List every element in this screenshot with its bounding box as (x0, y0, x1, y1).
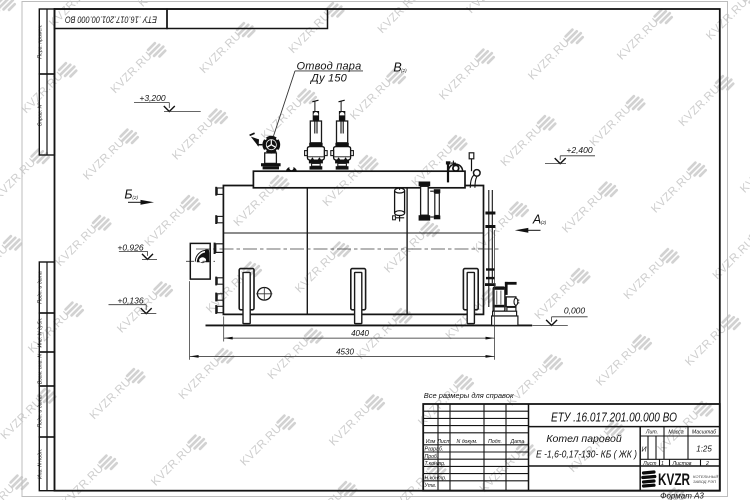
svg-text:KVZR.RU: KVZR.RU (649, 169, 695, 215)
svg-text:Котел паровой: Котел паровой (546, 433, 621, 445)
svg-text:KVZR.RU: KVZR.RU (149, 442, 195, 488)
svg-text:1:25: 1:25 (696, 445, 712, 454)
svg-text:Дата: Дата (509, 439, 524, 445)
svg-text:KVZR.RU: KVZR.RU (499, 123, 545, 169)
svg-text:Лист: Лист (642, 461, 657, 467)
svg-text:KVZR.RU: KVZR.RU (259, 96, 305, 142)
svg-text:Масса: Масса (668, 430, 683, 436)
svg-text:И: И (641, 447, 647, 454)
svg-text:KVZR.RU: KVZR.RU (293, 249, 339, 295)
svg-text:1: 1 (661, 461, 664, 467)
svg-text:KVZR.RU: KVZR.RU (26, 309, 72, 355)
svg-text:Подп. и дата: Подп. и дата (38, 271, 44, 304)
svg-text:KVZR.RU: KVZR.RU (177, 356, 223, 402)
svg-text:(2): (2) (401, 68, 407, 73)
svg-text:Лит.: Лит. (645, 430, 658, 436)
svg-text:KVZR.RU: KVZR.RU (287, 10, 333, 56)
svg-text:KVZR.RU: KVZR.RU (526, 36, 572, 82)
svg-text:KVZR.RU: KVZR.RU (54, 223, 100, 269)
svg-text:+0,136: +0,136 (117, 296, 144, 306)
svg-text:Инв. N подл.: Инв. N подл. (38, 449, 44, 479)
svg-text:KVZR.RU: KVZR.RU (170, 116, 216, 162)
svg-text:КОТЕЛЬНЫЙ: КОТЕЛЬНЫЙ (693, 474, 718, 479)
svg-text:KVZR.RU: KVZR.RU (465, 0, 511, 16)
svg-text:Масштаб: Масштаб (692, 430, 717, 436)
svg-text:KVZR.RU: KVZR.RU (81, 136, 127, 182)
svg-text:4530: 4530 (336, 348, 354, 357)
svg-text:KVZR.RU: KVZR.RU (0, 156, 38, 202)
svg-text:KVZR.RU: KVZR.RU (478, 449, 524, 495)
svg-text:KVZR.RU: KVZR.RU (198, 30, 244, 76)
svg-text:Инв. N дубл.: Инв. N дубл. (38, 317, 44, 347)
svg-text:KVZR.RU: KVZR.RU (437, 56, 483, 102)
svg-text:Лист: Лист (436, 439, 451, 445)
svg-text:Листов: Листов (672, 461, 692, 467)
svg-text:KVZR.RU: KVZR.RU (711, 236, 750, 282)
svg-text:KVZR.RU: KVZR.RU (594, 342, 640, 388)
svg-text:KVZR.RU: KVZR.RU (321, 163, 367, 209)
svg-text:KVZR.RU: KVZR.RU (266, 336, 312, 382)
svg-text:Ду 150: Ду 150 (309, 73, 348, 85)
svg-text:ЗАВОД РЭП: ЗАВОД РЭП (693, 479, 716, 484)
svg-text:Б: Б (124, 188, 132, 202)
svg-text:KVZR.RU: KVZR.RU (238, 422, 284, 468)
svg-text:KVZR.RU: KVZR.RU (109, 50, 155, 96)
svg-text:KVZR.RU: KVZR.RU (88, 376, 134, 422)
svg-text:4040: 4040 (351, 329, 369, 338)
svg-text:KVZR.RU: KVZR.RU (60, 462, 106, 500)
svg-text:Е -1,6-0,17-130- КБ ( ЖК ): Е -1,6-0,17-130- КБ ( ЖК ) (536, 448, 637, 460)
svg-text:KVZR.RU: KVZR.RU (560, 189, 606, 235)
svg-text:KVZR.RU: KVZR.RU (683, 322, 729, 368)
svg-text:(2): (2) (541, 220, 547, 225)
svg-text:N докум.: N докум. (457, 439, 478, 445)
svg-text:Проб.: Проб. (425, 454, 439, 460)
svg-text:KVZR.RU: KVZR.RU (382, 229, 428, 275)
svg-text:KVZR.RU: KVZR.RU (327, 402, 373, 448)
svg-text:KVZR.RU: KVZR.RU (505, 362, 551, 408)
svg-text:KVZR.RU: KVZR.RU (738, 149, 750, 195)
svg-text:Справ. N°: Справ. N° (38, 103, 44, 127)
svg-text:KVZR.RU: KVZR.RU (622, 256, 668, 302)
svg-text:0,000: 0,000 (564, 305, 586, 315)
svg-text:KVZR.RU: KVZR.RU (615, 16, 661, 62)
svg-text:KVZR: KVZR (658, 471, 690, 489)
svg-text:Формат А3: Формат А3 (660, 492, 704, 500)
svg-text:(2): (2) (132, 195, 138, 200)
svg-text:Утв.: Утв. (425, 483, 437, 489)
svg-text:Т.контр.: Т.контр. (425, 461, 446, 467)
svg-text:ЕТУ .16.017.201.00.000 ВО: ЕТУ .16.017.201.00.000 ВО (551, 410, 677, 425)
svg-text:Подп. и дата: Подп. и дата (38, 395, 44, 428)
svg-text:+2,400: +2,400 (566, 145, 593, 155)
svg-text:KVZR.RU: KVZR.RU (0, 243, 11, 289)
svg-text:Все размеры для справок: Все размеры для справок (424, 391, 514, 400)
svg-text:KVZR.RU: KVZR.RU (677, 83, 723, 129)
svg-text:KVZR.RU: KVZR.RU (376, 0, 422, 36)
svg-text:Подп.: Подп. (488, 439, 502, 445)
svg-text:KVZR.RU: KVZR.RU (348, 76, 394, 122)
svg-text:Изм: Изм (426, 439, 436, 445)
svg-text:Н.контр.: Н.контр. (425, 475, 447, 481)
svg-text:KVZR.RU: KVZR.RU (232, 183, 278, 229)
svg-text:KVZR.RU: KVZR.RU (143, 203, 189, 249)
svg-text:Взам. инв. N: Взам. инв. N (38, 354, 44, 384)
svg-text:Разраб.: Разраб. (425, 447, 444, 453)
svg-text:2: 2 (705, 461, 709, 467)
svg-text:KVZR.RU: KVZR.RU (588, 103, 634, 149)
svg-text:Перв. примен.: Перв. примен. (38, 24, 44, 58)
svg-text:+3,200: +3,200 (139, 93, 166, 103)
svg-text:ЕТУ .16.017.201.00.000 ВО: ЕТУ .16.017.201.00.000 ВО (65, 14, 157, 24)
